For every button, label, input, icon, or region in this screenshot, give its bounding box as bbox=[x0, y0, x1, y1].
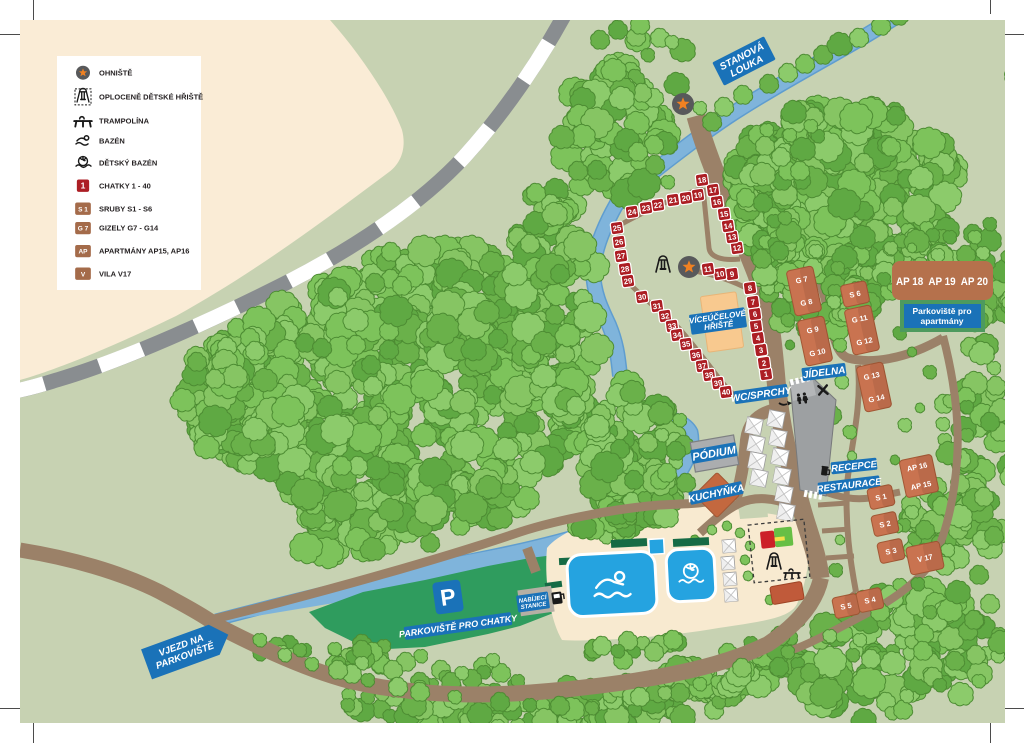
svg-text:GIZELY G7 - G14: GIZELY G7 - G14 bbox=[99, 224, 159, 233]
svg-text:VILA V17: VILA V17 bbox=[99, 269, 131, 278]
svg-text:27: 27 bbox=[616, 251, 626, 261]
svg-text:AP 18 AP 19 AP 20: AP 18 AP 19 AP 20 bbox=[896, 276, 988, 288]
svg-text:OHNIŠTĚ: OHNIŠTĚ bbox=[99, 68, 132, 77]
svg-text:G 7: G 7 bbox=[78, 226, 89, 233]
svg-text:SRUBY S1 - S6: SRUBY S1 - S6 bbox=[99, 204, 152, 213]
svg-text:CHATKY 1 - 40: CHATKY 1 - 40 bbox=[99, 181, 151, 190]
svg-text:1: 1 bbox=[81, 181, 86, 191]
svg-text:OPLOCENĚ DĚTSKÉ HŘIŠTĚ: OPLOCENĚ DĚTSKÉ HŘIŠTĚ bbox=[99, 93, 203, 102]
svg-text:APARTMÁNY AP15, AP16: APARTMÁNY AP15, AP16 bbox=[99, 247, 189, 256]
svg-text:TRAMPOLÍNA: TRAMPOLÍNA bbox=[99, 117, 150, 126]
svg-text:DĚTSKÝ BAZÉN: DĚTSKÝ BAZÉN bbox=[99, 159, 157, 168]
svg-text:S 1: S 1 bbox=[78, 206, 88, 213]
svg-text:apartmány: apartmány bbox=[921, 316, 964, 326]
svg-text:17: 17 bbox=[708, 185, 718, 195]
svg-text:Parkoviště pro: Parkoviště pro bbox=[912, 306, 971, 316]
svg-text:AP: AP bbox=[78, 249, 88, 256]
svg-text:V: V bbox=[81, 271, 86, 278]
svg-text:BAZÉN: BAZÉN bbox=[99, 137, 125, 146]
